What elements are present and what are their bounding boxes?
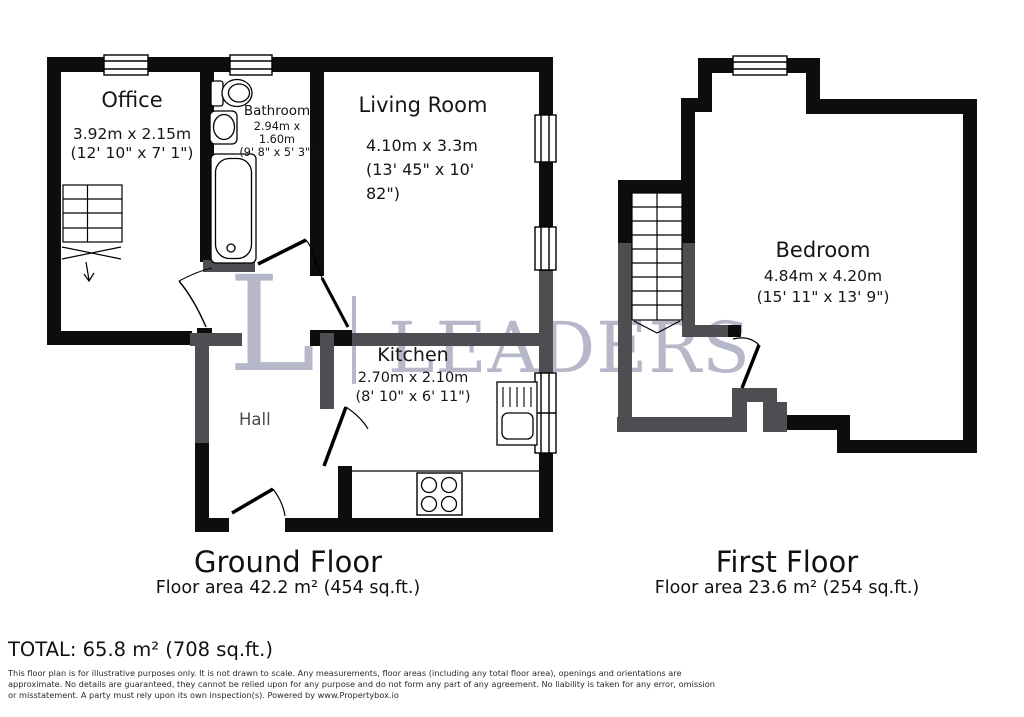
first-floor-door <box>733 338 759 388</box>
room-label-hall: Hall <box>239 410 271 429</box>
room-label-living-room: Living Room <box>348 93 498 117</box>
first-floor-window <box>733 56 787 75</box>
room-dimensions-metric: 2.94m x 1.60m <box>236 120 318 146</box>
total-area: TOTAL: 65.8 m² (708 sq.ft.) <box>8 638 273 661</box>
room-dimensions-imperial: (9' 8" x 5' 3") <box>236 146 318 159</box>
ground-floor-area: Floor area 42.2 m² (454 sq.ft.) <box>138 578 438 598</box>
room-dimensions-imperial: (13' 45" x 10' <box>366 158 486 182</box>
floorplan-page: L LEADERS <box>0 0 1024 717</box>
bathtub-drain <box>227 244 235 252</box>
room-dimensions-metric: 4.84m x 4.20m <box>737 266 909 287</box>
room-name: Living Room <box>348 93 498 117</box>
ground-floor-stairs <box>62 185 122 281</box>
room-label-bedroom: Bedroom 4.84m x 4.20m (15' 11" x 13' 9") <box>737 238 909 308</box>
room-label-office: Office 3.92m x 2.15m (12' 10" x 7' 1") <box>52 88 212 163</box>
room-dimensions-metric: 4.10m x 3.3m <box>366 134 486 158</box>
room-label-kitchen: Kitchen 2.70m x 2.10m (8' 10" x 6' 11") <box>340 344 486 407</box>
room-name: Bathroom <box>236 103 318 119</box>
front-door-opening <box>229 516 285 534</box>
room-dimensions-imperial: 82") <box>366 182 486 206</box>
toilet-tank <box>211 81 223 106</box>
room-dimensions-metric: 2.70m x 2.10m <box>340 369 486 388</box>
room-dimensions-imperial: (15' 11" x 13' 9") <box>737 287 909 308</box>
ground-floor-title: Ground Floor <box>138 545 438 579</box>
room-name: Kitchen <box>340 344 486 366</box>
room-name: Bedroom <box>737 238 909 262</box>
room-dimensions-imperial: (12' 10" x 7' 1") <box>52 144 212 163</box>
disclaimer-text: This floor plan is for illustrative purp… <box>8 668 718 701</box>
room-dimensions-metric: 3.92m x 2.15m <box>52 125 212 144</box>
room-name: Office <box>52 88 212 112</box>
room-dimensions-imperial: (8' 10" x 6' 11") <box>340 388 486 407</box>
first-floor-area: Floor area 23.6 m² (254 sq.ft.) <box>637 578 937 598</box>
first-floor-stairs <box>632 193 682 333</box>
room-name: Hall <box>239 410 271 429</box>
sink-bowl <box>502 413 533 439</box>
first-floor-title: First Floor <box>637 545 937 579</box>
room-label-bathroom: Bathroom 2.94m x 1.60m (9' 8" x 5' 3") <box>236 103 318 159</box>
room-dimensions-living-room: 4.10m x 3.3m (13' 45" x 10' 82") <box>366 134 486 206</box>
